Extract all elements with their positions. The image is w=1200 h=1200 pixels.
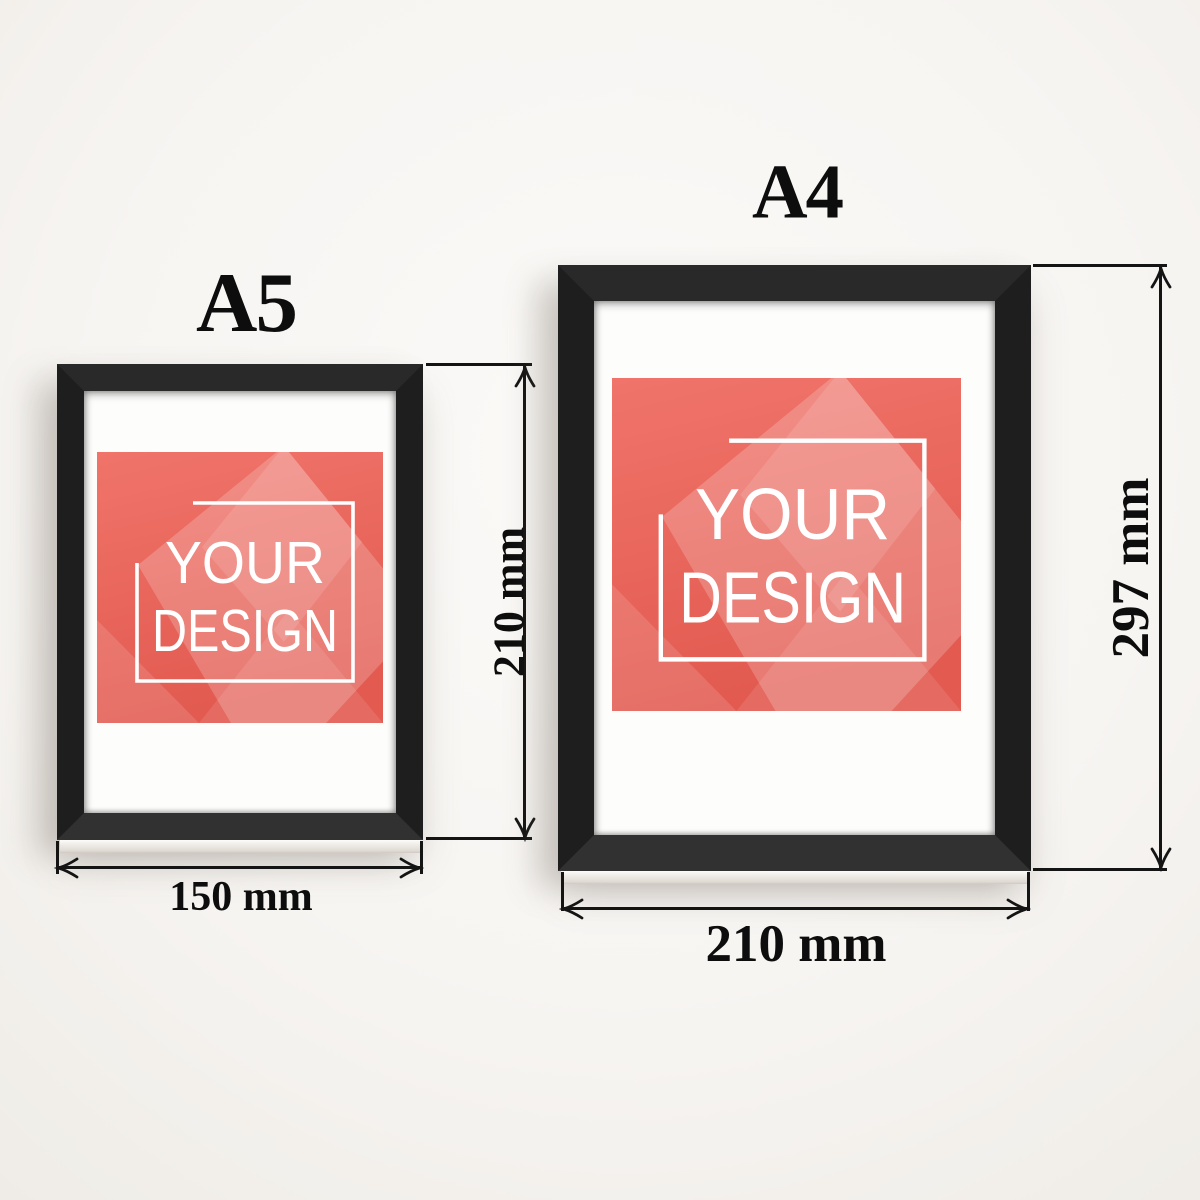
arrow-up-icon: [512, 363, 538, 389]
arrow-left-icon: [54, 855, 80, 881]
a5-frame-bottom-edge-highlight: [60, 840, 420, 853]
a5-frame: YOUR DESIGN: [57, 364, 423, 840]
a4-poster-artwork: YOUR DESIGN: [612, 378, 961, 711]
a4-frame: YOUR DESIGN: [558, 265, 1031, 871]
a4-height-label: 297 mm: [1101, 477, 1161, 658]
a4-height-extension-bottom: [1033, 868, 1167, 871]
a5-frame-bottom-moulding: [57, 813, 423, 840]
arrow-down-icon: [1148, 846, 1174, 872]
a4-poster: YOUR DESIGN: [612, 378, 961, 711]
a5-title: A5: [196, 254, 296, 352]
a4-frame-bottom-edge-highlight: [561, 871, 1028, 884]
a4-frame-top-moulding: [558, 265, 1031, 301]
a5-height-label: 210 mm: [484, 527, 535, 677]
poster-text-line1: YOUR: [695, 475, 890, 555]
a4-height-extension-top: [1033, 264, 1167, 267]
a4-title: A4: [752, 148, 842, 237]
arrow-right-icon: [1005, 896, 1031, 922]
a5-width-dimension-line: [57, 866, 423, 869]
a5-mat: YOUR DESIGN: [84, 391, 396, 813]
arrow-down-icon: [512, 816, 538, 842]
poster-text-line1: YOUR: [165, 530, 325, 596]
arrow-left-icon: [559, 896, 585, 922]
a5-poster-artwork: YOUR DESIGN: [97, 452, 383, 723]
a4-mat: YOUR DESIGN: [594, 301, 995, 835]
a5-width-label: 150 mm: [169, 873, 312, 921]
a4-width-dimension-line: [562, 907, 1030, 910]
a5-poster: YOUR DESIGN: [97, 452, 383, 723]
poster-text-line2: DESIGN: [679, 558, 906, 638]
a4-frame-bottom-moulding: [558, 835, 1031, 871]
poster-text-line2: DESIGN: [152, 598, 338, 664]
frame-size-comparison-diagram: A5 YOU: [0, 0, 1200, 1200]
a5-frame-top-moulding: [57, 364, 423, 391]
arrow-up-icon: [1148, 264, 1174, 290]
a4-width-label: 210 mm: [705, 914, 886, 974]
arrow-right-icon: [398, 855, 424, 881]
